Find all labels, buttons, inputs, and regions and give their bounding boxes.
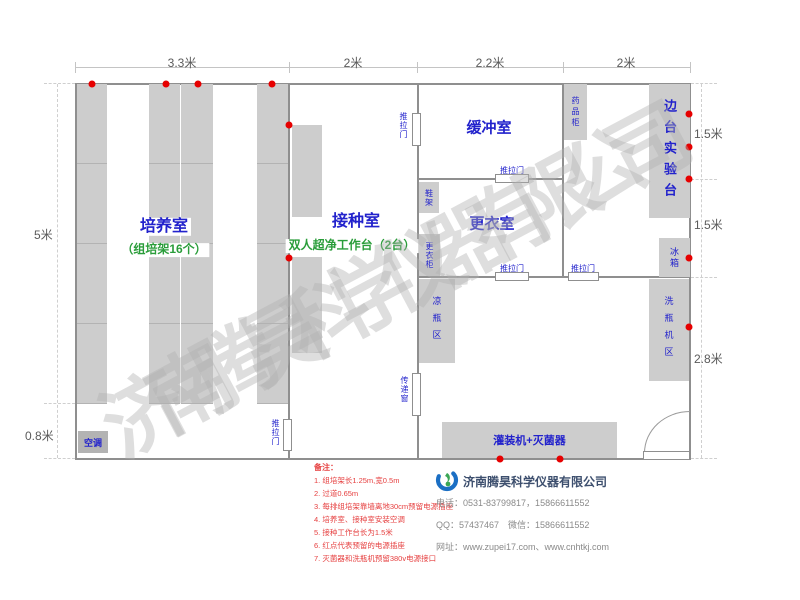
entrance-door-leaf — [643, 451, 690, 460]
notes-title: 备注： — [314, 461, 453, 474]
left-dimension-line — [57, 84, 58, 458]
cooling-bottle-area: 凉瓶区 — [419, 279, 455, 363]
note-item: 7. 灭菌器和洗瓶机预留380v电源接口 — [314, 552, 453, 565]
room-label-cultivation: 培养室 — [137, 218, 191, 236]
power-socket-dot — [269, 81, 276, 88]
dim-top-2: 2米 — [344, 54, 363, 71]
note-item: 1. 组培架长1.25m,宽0.5m — [314, 474, 453, 487]
power-socket-dot — [686, 255, 693, 262]
dim-top-1: 3.3米 — [168, 54, 197, 71]
dim-right-1: 1.5米 — [694, 125, 723, 142]
dim-tick — [75, 62, 76, 73]
dim-tick — [563, 62, 564, 73]
transfer-window-label: 传递窗 — [399, 376, 410, 403]
notes-block: 备注： 1. 组培架长1.25m,宽0.5m 2. 过道0.65m 3. 每排组… — [314, 461, 453, 565]
wall-changing-south — [417, 276, 691, 278]
dim-left-1: 5米 — [34, 226, 53, 243]
wall-cultivation-inoculation — [288, 83, 290, 460]
dim-right-3: 2.8米 — [694, 350, 723, 367]
room-label-inoculation: 接种室 — [329, 213, 383, 231]
company-qq-wechat: QQ：57437467 微信：15866611552 — [436, 518, 589, 531]
sliding-door-label: 推拉门 — [571, 263, 595, 274]
dim-tick — [691, 277, 717, 278]
dim-tick — [44, 83, 75, 84]
power-socket-dot — [686, 176, 693, 183]
power-socket-dot — [497, 456, 504, 463]
sliding-door-label: 推拉门 — [270, 419, 281, 446]
power-socket-dot — [89, 81, 96, 88]
power-socket-dot — [163, 81, 170, 88]
sliding-door — [412, 113, 421, 146]
company-website: 网址：www.zupei17.com、www.cnhtkj.com — [436, 540, 609, 553]
room-sublabel-inoculation: 双人超净工作台（2台） — [286, 239, 419, 253]
note-item: 6. 红点代表预留的电源插座 — [314, 539, 453, 552]
sliding-door-label: 推拉门 — [398, 112, 409, 139]
wall-buffer-changing — [417, 178, 564, 180]
medicine-cabinet: 药品柜 — [564, 84, 587, 140]
wardrobe: 更衣柜 — [419, 234, 440, 276]
note-item: 2. 过道0.65m — [314, 487, 453, 500]
dim-tick — [691, 83, 717, 84]
dim-tick — [691, 179, 717, 180]
power-socket-dot — [557, 456, 564, 463]
power-socket-dot — [686, 111, 693, 118]
power-socket-dot — [195, 81, 202, 88]
culture-rack-column — [77, 84, 107, 404]
filling-machine-sterilizer: 灌装机+灭菌器 — [442, 422, 617, 458]
sliding-door-label: 推拉门 — [500, 165, 524, 176]
dim-right-2: 1.5米 — [694, 216, 723, 233]
side-bench: 边台实验台 — [649, 84, 690, 218]
note-item: 5. 接种工作台长为1.5米 — [314, 526, 453, 539]
dim-tick — [44, 403, 75, 404]
dim-left-2: 0.8米 — [25, 427, 54, 444]
bottle-washer-area: 洗瓶机区 — [649, 279, 689, 381]
sliding-door — [283, 419, 292, 451]
dim-tick — [417, 62, 418, 73]
company-name: 济南腾昊科学仪器有限公司 — [463, 473, 607, 490]
culture-rack-column — [257, 84, 288, 404]
note-item: 4. 培养室、接种室安装空调 — [314, 513, 453, 526]
dim-tick — [690, 62, 691, 73]
dim-tick — [44, 458, 75, 459]
room-label-changing: 更衣室 — [466, 215, 517, 232]
power-socket-dot — [686, 324, 693, 331]
air-conditioner: 空调 — [78, 431, 108, 453]
door-swing-arc — [644, 411, 690, 453]
company-phone: 电话：0531-83799817，15866611552 — [436, 496, 589, 509]
company-logo-icon — [435, 468, 459, 492]
power-socket-dot — [286, 255, 293, 262]
power-socket-dot — [686, 144, 693, 151]
transfer-window — [412, 373, 421, 416]
shoe-rack: 鞋架 — [419, 182, 439, 213]
sliding-door-label: 推拉门 — [500, 263, 524, 274]
note-item: 3. 每排组培架靠墙离地30cm预留电源插座 — [314, 500, 453, 513]
dim-tick — [691, 458, 717, 459]
dim-top-4: 2米 — [617, 54, 636, 71]
dim-tick — [289, 62, 290, 73]
dim-top-3: 2.2米 — [476, 54, 505, 71]
room-sublabel-cultivation: （组培架16个） — [118, 243, 209, 257]
inoculation-bench — [292, 125, 322, 217]
inoculation-bench — [292, 257, 322, 353]
power-socket-dot — [286, 122, 293, 129]
floor-plan: 3.3米 2米 2.2米 2米 5米 0.8米 1.5米 1.5米 2.8米 药… — [0, 0, 800, 600]
room-label-buffer: 缓冲室 — [463, 119, 514, 136]
